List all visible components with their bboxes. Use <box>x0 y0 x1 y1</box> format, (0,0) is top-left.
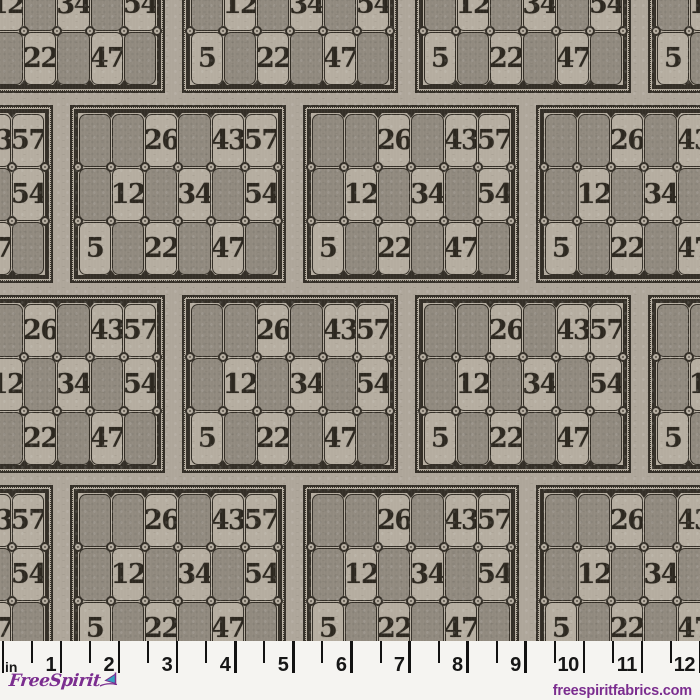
lotto-card-grid: 26435712345452247 <box>190 303 390 465</box>
blank-cell <box>145 548 177 601</box>
card-number: 57 <box>478 507 510 534</box>
lotto-card-frame: 26435712345452247 <box>307 109 515 279</box>
card-number: 54 <box>357 0 389 18</box>
notch-icon <box>586 80 594 85</box>
blank-cell <box>657 304 689 357</box>
lotto-card: 26435712345452247 <box>70 105 286 283</box>
number-cell: 34 <box>290 358 322 411</box>
card-number: 22 <box>24 45 56 72</box>
number-cell: 43 <box>324 304 356 357</box>
blank-cell <box>145 168 177 221</box>
number-cell: 57 <box>590 304 622 357</box>
lotto-card-frame: 26435712345452247 <box>74 489 282 641</box>
number-cell: 43 <box>445 494 477 547</box>
rivet-icon <box>606 216 616 226</box>
number-cell: 43 <box>445 114 477 167</box>
rivet-icon <box>173 162 183 172</box>
inch-number: 3 <box>136 654 172 677</box>
rivet-icon <box>206 542 216 552</box>
blank-cell <box>79 114 111 167</box>
lotto-card: 26435712345452247 <box>0 0 165 93</box>
card-number: 47 <box>324 45 356 72</box>
blank-cell <box>257 358 289 411</box>
blank-cell <box>12 602 44 642</box>
card-number: 54 <box>590 0 622 18</box>
card-number: 34 <box>644 561 676 588</box>
card-number: 12 <box>457 0 489 18</box>
blank-cell <box>0 168 11 221</box>
card-number: 34 <box>290 371 322 398</box>
notch-icon <box>353 80 361 85</box>
notch-icon <box>319 80 327 85</box>
blank-cell <box>545 548 577 601</box>
card-number: 22 <box>378 615 410 642</box>
number-cell: 54 <box>590 0 622 31</box>
rivet-icon <box>518 406 528 416</box>
card-number: 57 <box>357 317 389 344</box>
rivet-icon <box>285 26 295 36</box>
card-number: 22 <box>490 45 522 72</box>
lotto-card-frame: 26435712345452247 <box>74 109 282 279</box>
number-cell: 5 <box>424 32 456 85</box>
inch-number: 6 <box>310 654 346 677</box>
rivet-icon <box>119 406 129 416</box>
rivet-icon <box>306 162 316 172</box>
blank-cell <box>678 168 700 221</box>
rivet-icon <box>140 216 150 226</box>
number-cell: 34 <box>178 168 210 221</box>
number-cell: 12 <box>345 548 377 601</box>
inch-tick <box>118 641 121 673</box>
number-cell: 22 <box>378 602 410 642</box>
number-cell: 43 <box>91 304 123 357</box>
number-cell: 54 <box>478 548 510 601</box>
lotto-card-grid: 26435712345452247 <box>78 113 278 275</box>
lotto-card-frame: 26435712345452247 <box>540 489 700 641</box>
card-number: 54 <box>245 561 277 588</box>
blank-cell <box>79 494 111 547</box>
card-number: 26 <box>24 317 56 344</box>
card-number: 47 <box>445 235 477 262</box>
rivet-icon <box>106 542 116 552</box>
blank-cell <box>290 412 322 465</box>
notch-icon <box>407 113 415 118</box>
lotto-card: 26435712345452247 <box>303 485 519 641</box>
rivet-icon <box>485 352 495 362</box>
number-cell: 12 <box>578 548 610 601</box>
number-cell: 22 <box>611 602 643 642</box>
number-cell: 12 <box>0 0 23 31</box>
rivet-icon <box>473 162 483 172</box>
number-cell: 26 <box>257 304 289 357</box>
blank-cell <box>644 222 676 275</box>
rivet-icon <box>451 26 461 36</box>
card-number: 26 <box>378 507 410 534</box>
blank-cell <box>324 358 356 411</box>
rivet-icon <box>73 162 83 172</box>
card-number: 54 <box>12 561 44 588</box>
rivet-icon <box>406 596 416 606</box>
notch-icon <box>407 493 415 498</box>
rivet-icon <box>185 26 195 36</box>
lotto-card: 26435712345452247 <box>648 0 700 93</box>
number-cell: 34 <box>290 0 322 31</box>
card-number: 57 <box>478 127 510 154</box>
card-number: 43 <box>445 507 477 534</box>
blank-cell <box>378 548 410 601</box>
notch-icon <box>486 80 494 85</box>
rivet-icon <box>252 352 262 362</box>
notch-icon <box>8 113 16 118</box>
notch-icon <box>340 113 348 118</box>
notch-icon <box>452 80 460 85</box>
blank-cell <box>257 0 289 31</box>
lotto-card: 26435712345452247 <box>536 105 700 283</box>
card-number: 47 <box>324 425 356 452</box>
blank-cell <box>523 32 555 85</box>
inch-tick <box>234 641 237 673</box>
rivet-icon <box>551 406 561 416</box>
notch-icon <box>319 460 327 465</box>
rivet-icon <box>318 26 328 36</box>
rivet-icon <box>572 162 582 172</box>
rivet-icon <box>439 542 449 552</box>
rivet-icon <box>639 162 649 172</box>
card-number: 22 <box>145 615 177 642</box>
card-number: 26 <box>490 317 522 344</box>
rivet-icon <box>106 162 116 172</box>
card-number: 26 <box>145 127 177 154</box>
blank-cell <box>578 114 610 167</box>
lotto-card-grid: 26435712345452247 <box>311 113 511 275</box>
rivet-icon <box>539 162 549 172</box>
rivet-icon <box>651 352 661 362</box>
number-cell: 54 <box>478 168 510 221</box>
blank-cell <box>0 32 23 85</box>
notch-icon <box>474 113 482 118</box>
card-number: 22 <box>257 45 289 72</box>
card-number: 34 <box>411 561 443 588</box>
rivet-icon <box>451 406 461 416</box>
rivet-icon <box>373 216 383 226</box>
blank-cell <box>457 304 489 357</box>
lotto-card: 26435712345452247 <box>182 295 398 473</box>
rivet-icon <box>373 542 383 552</box>
card-number: 57 <box>245 127 277 154</box>
lotto-card-grid: 26435712345452247 <box>0 303 157 465</box>
card-number: 12 <box>345 561 377 588</box>
lotto-card-grid: 26435712345452247 <box>544 113 700 275</box>
notch-icon <box>552 460 560 465</box>
rivet-icon <box>506 162 516 172</box>
card-number: 12 <box>690 0 700 18</box>
notch-icon <box>607 113 615 118</box>
blank-cell <box>79 548 111 601</box>
card-number: 12 <box>578 561 610 588</box>
card-number: 57 <box>245 507 277 534</box>
number-cell: 47 <box>0 222 11 275</box>
rivet-icon <box>684 406 694 416</box>
notch-icon <box>219 303 227 308</box>
inch-tick <box>408 641 411 673</box>
number-cell: 5 <box>424 412 456 465</box>
rivet-icon <box>518 352 528 362</box>
notch-icon <box>452 460 460 465</box>
rivet-icon <box>439 216 449 226</box>
rivet-icon <box>585 352 595 362</box>
blank-cell <box>245 602 277 642</box>
number-cell: 54 <box>12 168 44 221</box>
card-number: 5 <box>198 45 215 72</box>
card-number: 26 <box>257 317 289 344</box>
rivet-icon <box>572 596 582 606</box>
card-number: 43 <box>678 507 700 534</box>
card-number: 57 <box>590 317 622 344</box>
notch-icon <box>8 493 16 498</box>
notch-icon <box>474 493 482 498</box>
rivet-icon <box>306 216 316 226</box>
number-cell: 26 <box>145 494 177 547</box>
blank-cell <box>478 222 510 275</box>
rivet-icon <box>672 162 682 172</box>
inch-number: 4 <box>194 654 230 677</box>
rivet-icon <box>339 216 349 226</box>
card-number: 26 <box>145 507 177 534</box>
notch-icon <box>573 113 581 118</box>
rivet-icon <box>485 26 495 36</box>
lotto-card: 26435712345452247 <box>536 485 700 641</box>
rivet-icon <box>40 216 50 226</box>
website-url: freespiritfabrics.com <box>553 683 692 699</box>
card-number: 43 <box>0 127 11 154</box>
rivet-icon <box>618 352 628 362</box>
card-number: 47 <box>557 45 589 72</box>
rivet-icon <box>252 26 262 36</box>
blank-cell <box>191 358 223 411</box>
rivet-icon <box>40 162 50 172</box>
lotto-card-grid: 26435712345452247 <box>0 0 157 85</box>
card-number: 12 <box>457 371 489 398</box>
notch-icon <box>253 303 261 308</box>
card-number: 34 <box>178 181 210 208</box>
blank-cell <box>590 412 622 465</box>
lotto-card-grid: 26435712345452247 <box>544 493 700 641</box>
freespirit-logo: FreeSpirit <box>9 672 121 690</box>
blank-cell <box>345 494 377 547</box>
blank-cell <box>112 494 144 547</box>
blank-cell <box>424 358 456 411</box>
blank-cell <box>578 222 610 275</box>
rivet-icon <box>506 596 516 606</box>
notch-icon <box>120 80 128 85</box>
blank-cell <box>57 32 89 85</box>
inch-number: 7 <box>369 654 405 677</box>
lotto-card-frame: 26435712345452247 <box>0 489 49 641</box>
rivet-icon <box>672 216 682 226</box>
rivet-icon <box>651 406 661 416</box>
notch-icon <box>573 493 581 498</box>
lotto-card-grid: 26435712345452247 <box>0 493 45 641</box>
blank-cell <box>411 494 443 547</box>
blank-cell <box>312 494 344 547</box>
rivet-icon <box>85 406 95 416</box>
card-number: 54 <box>124 371 156 398</box>
notch-icon <box>286 80 294 85</box>
inch-tick <box>641 641 644 673</box>
rivet-icon <box>684 352 694 362</box>
blank-cell <box>590 32 622 85</box>
number-cell: 22 <box>490 32 522 85</box>
blank-cell <box>445 168 477 221</box>
rivet-icon <box>418 26 428 36</box>
lotto-card-frame: 26435712345452247 <box>0 109 49 279</box>
lotto-card: 26435712345452247 <box>70 485 286 641</box>
number-cell: 47 <box>212 602 244 642</box>
number-cell: 5 <box>545 602 577 642</box>
blank-cell <box>523 304 555 357</box>
card-number: 34 <box>523 0 555 18</box>
number-cell: 47 <box>91 32 123 85</box>
rivet-icon <box>551 352 561 362</box>
notch-icon <box>353 303 361 308</box>
card-number: 47 <box>91 45 123 72</box>
card-number: 34 <box>178 561 210 588</box>
notch-icon <box>253 80 261 85</box>
number-cell: 54 <box>590 358 622 411</box>
notch-icon <box>374 270 382 275</box>
rivet-icon <box>439 162 449 172</box>
card-number: 43 <box>91 317 123 344</box>
notch-icon <box>20 460 28 465</box>
card-number: 22 <box>611 235 643 262</box>
notch-icon <box>640 270 648 275</box>
number-cell: 26 <box>378 114 410 167</box>
card-number: 54 <box>124 0 156 18</box>
blank-cell <box>212 168 244 221</box>
blank-cell <box>178 602 210 642</box>
number-cell: 57 <box>245 114 277 167</box>
lotto-card-frame: 26435712345452247 <box>186 0 394 89</box>
rivet-icon <box>73 542 83 552</box>
rivet-icon <box>7 596 17 606</box>
number-cell: 12 <box>690 358 700 411</box>
rivet-icon <box>273 596 283 606</box>
inch-tick <box>583 641 586 673</box>
rivet-icon <box>52 352 62 362</box>
blank-cell <box>178 494 210 547</box>
rivet-icon <box>318 406 328 416</box>
number-cell: 47 <box>0 602 11 642</box>
notch-icon <box>640 113 648 118</box>
rivet-icon <box>306 596 316 606</box>
lotto-card-grid: 26435712345452247 <box>190 0 390 85</box>
rivet-icon <box>273 216 283 226</box>
card-number: 26 <box>378 127 410 154</box>
number-cell: 47 <box>557 32 589 85</box>
rivet-icon <box>385 352 395 362</box>
rivet-icon <box>373 596 383 606</box>
blank-cell <box>0 304 23 357</box>
rivet-icon <box>352 406 362 416</box>
fabric-swatch-image: 2643571234545224726435712345452247264357… <box>0 0 700 700</box>
lotto-card: 26435712345452247 <box>303 105 519 283</box>
lotto-card-grid: 26435712345452247 <box>423 0 623 85</box>
card-number: 5 <box>319 615 336 642</box>
blank-cell <box>611 548 643 601</box>
lotto-card-frame: 26435712345452247 <box>540 109 700 279</box>
notch-icon <box>519 460 527 465</box>
fabric-pattern: 2643571234545224726435712345452247264357… <box>0 0 700 641</box>
number-cell: 5 <box>79 222 111 275</box>
rivet-icon <box>185 406 195 416</box>
notch-icon <box>207 493 215 498</box>
blank-cell <box>478 602 510 642</box>
number-cell: 57 <box>124 304 156 357</box>
number-cell: 54 <box>124 0 156 31</box>
freespirit-logo-text: FreeSpirit <box>8 673 101 690</box>
rivet-icon <box>572 542 582 552</box>
blank-cell <box>57 304 89 357</box>
inch-number: 8 <box>427 654 463 677</box>
blank-cell <box>357 412 389 465</box>
rivet-icon <box>173 216 183 226</box>
card-number: 54 <box>357 371 389 398</box>
number-cell: 47 <box>678 222 700 275</box>
number-cell: 12 <box>345 168 377 221</box>
lotto-card-grid: 26435712345452247 <box>656 303 700 465</box>
notch-icon <box>552 303 560 308</box>
number-cell: 12 <box>457 358 489 411</box>
rivet-icon <box>106 216 116 226</box>
card-number: 12 <box>224 371 256 398</box>
rivet-icon <box>539 216 549 226</box>
notch-icon <box>219 80 227 85</box>
number-cell: 22 <box>145 222 177 275</box>
notch-icon <box>207 270 215 275</box>
blank-cell <box>490 0 522 31</box>
number-cell: 12 <box>224 0 256 31</box>
rivet-icon <box>173 596 183 606</box>
blank-cell <box>424 304 456 357</box>
number-cell: 26 <box>24 304 56 357</box>
inch-number: 5 <box>252 654 288 677</box>
rivet-icon <box>506 542 516 552</box>
number-cell: 47 <box>324 412 356 465</box>
rivet-icon <box>606 162 616 172</box>
blank-cell <box>345 222 377 275</box>
rivet-icon <box>339 542 349 552</box>
card-number: 54 <box>590 371 622 398</box>
notch-icon <box>53 303 61 308</box>
lotto-card: 26435712345452247 <box>0 485 53 641</box>
number-cell: 43 <box>678 494 700 547</box>
rivet-icon <box>252 406 262 416</box>
rivet-icon <box>206 216 216 226</box>
rivet-icon <box>285 352 295 362</box>
rivet-icon <box>618 26 628 36</box>
card-number: 43 <box>212 127 244 154</box>
notch-icon <box>120 460 128 465</box>
rivet-icon <box>85 26 95 36</box>
rivet-icon <box>606 596 616 606</box>
notch-icon <box>486 460 494 465</box>
rivet-icon <box>52 26 62 36</box>
rivet-icon <box>7 542 17 552</box>
card-number: 5 <box>552 615 569 642</box>
notch-icon <box>452 303 460 308</box>
blank-cell <box>312 548 344 601</box>
notch-icon <box>107 270 115 275</box>
